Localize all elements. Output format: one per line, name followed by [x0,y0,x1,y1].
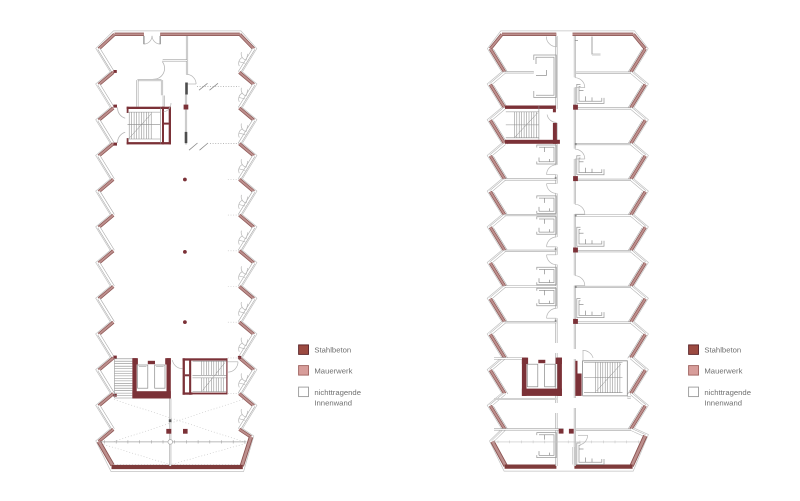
svg-text:Stahlbeton: Stahlbeton [314,346,351,355]
svg-text:nichttragende: nichttragende [314,388,361,397]
svg-text:Stahlbeton: Stahlbeton [704,346,741,355]
svg-text:nichttragende: nichttragende [704,388,751,397]
svg-text:Mauerwerk: Mauerwerk [704,366,742,375]
svg-text:Innenwand: Innenwand [704,399,742,408]
svg-text:Mauerwerk: Mauerwerk [314,366,352,375]
svg-text:Innenwand: Innenwand [314,399,352,408]
